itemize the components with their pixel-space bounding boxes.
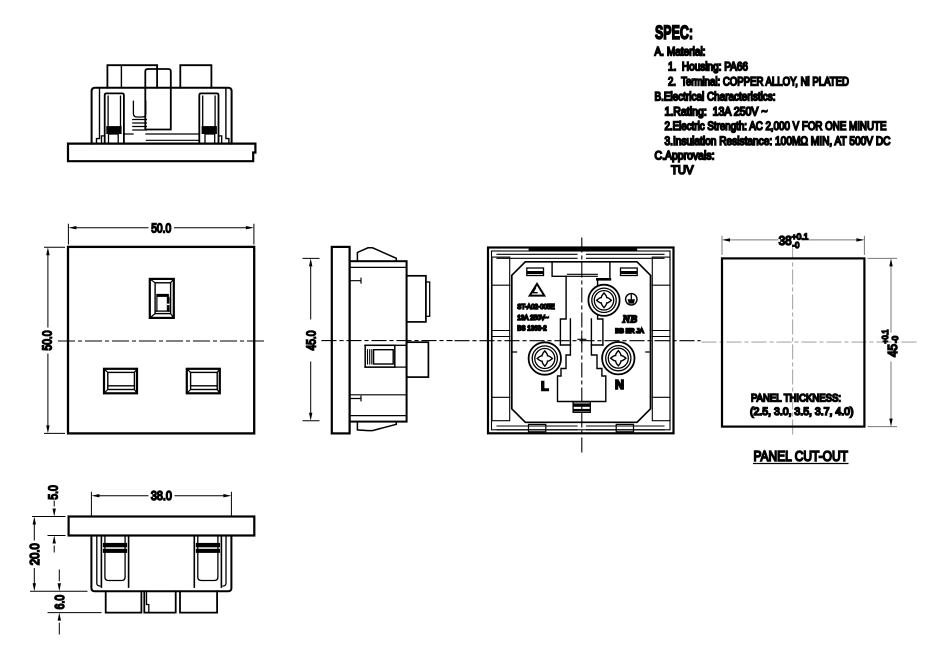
svg-text:-0: -0 bbox=[890, 336, 900, 343]
svg-text:PANEL CUT-OUT: PANEL CUT-OUT bbox=[753, 449, 848, 465]
svg-text:2.Electric Strength: AC 2,000: 2.Electric Strength: AC 2,000 V FOR ONE … bbox=[665, 121, 887, 133]
svg-text:45.0: 45.0 bbox=[304, 330, 318, 350]
svg-text:ST-A02-005E: ST-A02-005E bbox=[517, 304, 555, 311]
svg-text:38.0: 38.0 bbox=[151, 489, 172, 503]
svg-text:C.Approvals:: C.Approvals: bbox=[655, 151, 715, 163]
svg-text:20.0: 20.0 bbox=[28, 543, 42, 565]
svg-text:38: 38 bbox=[779, 233, 792, 248]
svg-text:NB: NB bbox=[622, 315, 638, 326]
svg-text:A. Material:: A. Material: bbox=[655, 46, 706, 58]
svg-text:SPEC:: SPEC: bbox=[655, 23, 693, 44]
svg-text:50.0: 50.0 bbox=[41, 330, 55, 350]
svg-text:B.Electrical Characteristics:: B.Electrical Characteristics: bbox=[655, 92, 776, 104]
svg-text:TUV: TUV bbox=[671, 165, 694, 177]
svg-text:6.0: 6.0 bbox=[53, 595, 67, 610]
svg-text:5.0: 5.0 bbox=[46, 485, 60, 500]
svg-text:N: N bbox=[615, 378, 624, 392]
svg-text:13A 250V~: 13A 250V~ bbox=[517, 315, 549, 322]
svg-text:BS 1363-2: BS 1363-2 bbox=[517, 326, 547, 333]
svg-text:PANEL THICKNESS:: PANEL THICKNESS: bbox=[751, 393, 841, 405]
svg-text:(2.5, 3.0, 3.5, 3.7, 4.0): (2.5, 3.0, 3.5, 3.7, 4.0) bbox=[750, 406, 854, 418]
svg-text:1.Rating: 13A 250V ~: 1.Rating: 13A 250V ~ bbox=[665, 106, 768, 118]
svg-text:+0.1: +0.1 bbox=[880, 329, 890, 343]
svg-text:50.0: 50.0 bbox=[151, 221, 171, 235]
svg-text:-0: -0 bbox=[792, 240, 799, 250]
svg-text:3.Insulation Resistance: 100MΩ: 3.Insulation Resistance: 100MΩ MIN, AT 5… bbox=[665, 136, 891, 148]
svg-text:2. Terminal: COPPER ALLOY, Ni: 2. Terminal: COPPER ALLOY, Ni PLATED bbox=[668, 77, 849, 89]
svg-text:45: 45 bbox=[885, 344, 900, 357]
svg-text:BB ER JA: BB ER JA bbox=[615, 329, 644, 335]
svg-text:1. Housing: PA66: 1. Housing: PA66 bbox=[668, 61, 748, 73]
svg-text:L: L bbox=[541, 379, 549, 393]
